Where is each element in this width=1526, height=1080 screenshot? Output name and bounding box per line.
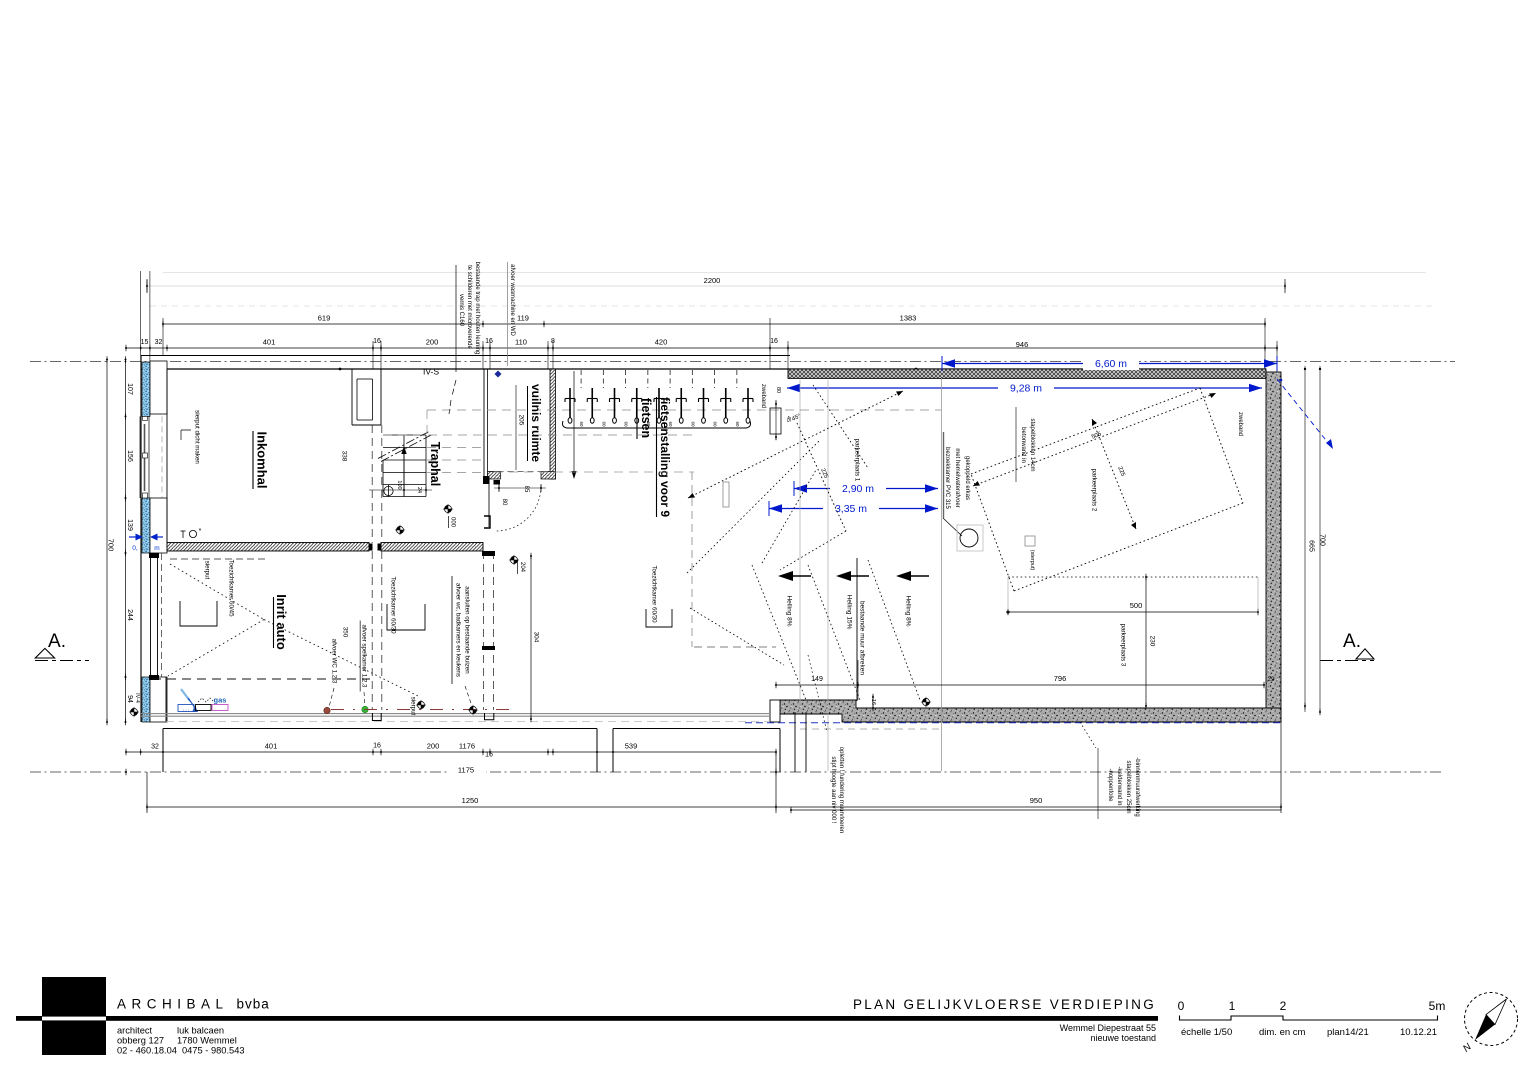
svg-text:5m: 5m	[1429, 999, 1446, 1013]
svg-text:946: 946	[1016, 340, 1029, 349]
svg-text:-kelderwand in: -kelderwand in	[1116, 766, 1122, 805]
svg-text:338: 338	[341, 451, 348, 462]
svg-text:60: 60	[579, 421, 584, 427]
svg-text:fietsen: fietsen	[639, 398, 653, 438]
svg-text:Toezichtkamer 60/30: Toezichtkamer 60/30	[390, 576, 397, 634]
svg-text:Helling 15%: Helling 15%	[846, 595, 853, 630]
svg-text:afvoer wc, badkamers en keuken: afvoer wc, badkamers en keukens	[455, 583, 462, 677]
svg-text:29: 29	[1267, 676, 1275, 683]
svg-text:539: 539	[625, 742, 638, 751]
svg-text:1175: 1175	[458, 766, 474, 775]
svg-text:80: 80	[501, 499, 507, 506]
svg-text:16: 16	[485, 752, 493, 759]
svg-text:32: 32	[155, 339, 163, 346]
svg-text:1383: 1383	[900, 314, 917, 323]
svg-text:02 - 460.18.04: 02 - 460.18.04	[117, 1046, 177, 1056]
svg-text:A.: A.	[1343, 631, 1361, 652]
svg-text:796: 796	[1054, 674, 1067, 683]
svg-text:230: 230	[1149, 636, 1156, 647]
svg-text:304: 304	[533, 632, 540, 643]
svg-text:420: 420	[655, 338, 668, 347]
svg-text:3,35 m: 3,35 m	[835, 503, 867, 515]
svg-text:2,90 m: 2,90 m	[842, 483, 874, 495]
svg-text:619: 619	[318, 314, 331, 323]
svg-text:-noppenfolie: -noppenfolie	[1107, 768, 1113, 802]
svg-text:60: 60	[601, 421, 606, 427]
svg-text:PLAN GELIJKVLOERSE VERDIEPING: PLAN GELIJKVLOERSE VERDIEPING	[853, 997, 1156, 1012]
svg-text:10.12.21: 10.12.21	[1400, 1027, 1437, 1038]
svg-text:1176: 1176	[459, 742, 475, 751]
svg-text:stipt hoogte aan niv 000 !: stipt hoogte aan niv 000 !	[830, 756, 836, 823]
svg-text:aansluiten op bestaande buizen: aansluiten op bestaande buizen	[464, 586, 471, 674]
svg-text:vernis C160: vernis C160	[458, 294, 464, 327]
svg-text:950: 950	[1030, 796, 1043, 805]
svg-text:85: 85	[523, 486, 529, 493]
svg-text:IV-4: IV-4	[134, 693, 140, 703]
svg-text:-binnenmuurafwerking: -binnenmuurafwerking	[1134, 757, 1140, 816]
svg-text:dim. en cm: dim. en cm	[1259, 1027, 1306, 1038]
svg-text:2200: 2200	[704, 276, 721, 285]
svg-text:1780 Wemmel: 1780 Wemmel	[177, 1036, 237, 1046]
svg-text:opletten ! fundering muurvloer: opletten ! fundering muurvloeren	[838, 747, 844, 833]
svg-text:architect: architect	[117, 1026, 153, 1036]
svg-text:zweband: zweband	[760, 384, 766, 408]
svg-text:vuilnis ruimte: vuilnis ruimte	[529, 384, 543, 462]
svg-text:zweband: zweband	[1237, 412, 1243, 436]
svg-text:stapelblokken 14cm: stapelblokken 14cm	[1029, 418, 1035, 471]
svg-text:700: 700	[107, 539, 116, 552]
svg-text:plan14/21: plan14/21	[1327, 1027, 1369, 1038]
svg-text:nieuwe toestand: nieuwe toestand	[1090, 1033, 1156, 1043]
svg-text:9,28 m: 9,28 m	[1010, 383, 1042, 395]
svg-text:m: m	[154, 545, 159, 552]
svg-text:350: 350	[342, 627, 349, 638]
svg-text:16: 16	[373, 338, 381, 345]
svg-text:*: *	[199, 528, 202, 535]
svg-text:bezoekkamer PVC 315: bezoekkamer PVC 315	[944, 447, 950, 509]
svg-text:500: 500	[1130, 601, 1143, 610]
svg-text:fietsenstalling voor 9: fietsenstalling voor 9	[658, 397, 672, 517]
svg-text:Wemmel Diepestraat 55: Wemmel Diepestraat 55	[1060, 1023, 1156, 1033]
svg-text:IV-S: IV-S	[423, 367, 439, 377]
svg-text:1250: 1250	[462, 796, 479, 805]
svg-text:Traphal: Traphal	[428, 442, 442, 486]
svg-text:107: 107	[126, 383, 133, 395]
svg-text:000: 000	[450, 517, 456, 528]
svg-text:met hemelwaterafvoer: met hemelwaterafvoer	[954, 448, 960, 507]
svg-text:A.: A.	[48, 631, 66, 652]
svg-text:204: 204	[519, 562, 525, 573]
svg-text:Toezichtkamer 60/30: Toezichtkamer 60/30	[651, 565, 658, 623]
svg-text:te schilderen met microverende: te schilderen met microverende	[466, 265, 472, 349]
svg-text:156: 156	[126, 450, 133, 462]
svg-text:60: 60	[690, 421, 695, 427]
svg-text:16: 16	[770, 338, 778, 345]
svg-text:parkeerplaats 2: parkeerplaats 2	[1091, 469, 1098, 512]
svg-text:200: 200	[426, 338, 439, 347]
svg-text:afvoer WC 1,2,3: afvoer WC 1,2,3	[331, 639, 338, 684]
svg-text:sierput: sierput	[204, 561, 211, 580]
svg-text:401: 401	[265, 742, 278, 751]
svg-text:6,60 m: 6,60 m	[1095, 358, 1127, 370]
svg-text:15: 15	[141, 339, 149, 346]
svg-text:24: 24	[416, 487, 422, 493]
svg-text:betonwand in: betonwand in	[1020, 427, 1026, 463]
svg-text:94: 94	[126, 695, 133, 703]
svg-text:700: 700	[1319, 534, 1326, 546]
svg-text:Inkomhal: Inkomhal	[255, 431, 270, 488]
svg-text:sierput: sierput	[410, 697, 417, 716]
svg-text:parkeerplaats 3: parkeerplaats 3	[1120, 624, 1127, 667]
svg-text:Inrit auto: Inrit auto	[274, 594, 289, 650]
svg-text:gekoppeld erkas: gekoppeld erkas	[964, 456, 970, 500]
svg-text:1: 1	[1229, 999, 1236, 1013]
svg-text:Toezichtkamer 60/45: Toezichtkamer 60/45	[228, 559, 235, 617]
svg-text:60: 60	[735, 421, 740, 427]
svg-text:100: 100	[396, 480, 402, 489]
svg-text:60: 60	[713, 421, 718, 427]
svg-text:échelle 1/50: échelle 1/50	[1181, 1027, 1232, 1038]
svg-text:139: 139	[126, 519, 133, 531]
svg-text:bestaande muur afbreken: bestaande muur afbreken	[859, 601, 866, 675]
svg-text:↓↓↓: ↓↓↓	[182, 708, 190, 714]
svg-text:parkeerplaats 1: parkeerplaats 1	[854, 439, 861, 482]
svg-text:119: 119	[517, 314, 529, 323]
svg-text:ARCHIBALbvba: ARCHIBALbvba	[117, 997, 270, 1012]
svg-text:Helling 8%: Helling 8%	[786, 595, 793, 626]
svg-text:afvoer spelkamer 1,2,3: afvoer spelkamer 1,2,3	[361, 625, 368, 688]
svg-text:200: 200	[427, 742, 440, 751]
svg-text:80: 80	[775, 387, 781, 393]
svg-text:afvoer wasmachine en WD: afvoer wasmachine en WD	[509, 264, 515, 336]
svg-text:0475 - 980.543: 0475 - 980.543	[182, 1046, 245, 1056]
svg-text:110: 110	[515, 338, 527, 347]
svg-text:obberg 127: obberg 127	[117, 1036, 164, 1046]
svg-text:stapelblokken 25cm: stapelblokken 25cm	[1125, 760, 1131, 813]
svg-text:luk balcaen: luk balcaen	[177, 1026, 224, 1036]
svg-text:2: 2	[1280, 999, 1287, 1013]
svg-text:gas: gas	[214, 696, 227, 705]
svg-text:205: 205	[518, 415, 525, 426]
svg-text:60: 60	[624, 421, 629, 427]
svg-text:401: 401	[263, 338, 276, 347]
svg-text:16: 16	[373, 743, 381, 750]
svg-text:665: 665	[1308, 540, 1315, 552]
svg-text:16: 16	[485, 338, 493, 345]
svg-text:149: 149	[811, 676, 823, 683]
svg-text:244: 244	[126, 609, 133, 621]
svg-text:0,: 0,	[132, 545, 138, 552]
svg-text:32: 32	[151, 744, 159, 751]
svg-text:(sterput): (sterput)	[1029, 550, 1035, 571]
svg-text:Helling 8%: Helling 8%	[905, 595, 912, 626]
svg-text:sierput dicht maken: sierput dicht maken	[194, 410, 201, 464]
svg-text:bestaande trap met houten leun: bestaande trap met houten leuning	[474, 262, 480, 355]
svg-text:0: 0	[1178, 999, 1185, 1013]
